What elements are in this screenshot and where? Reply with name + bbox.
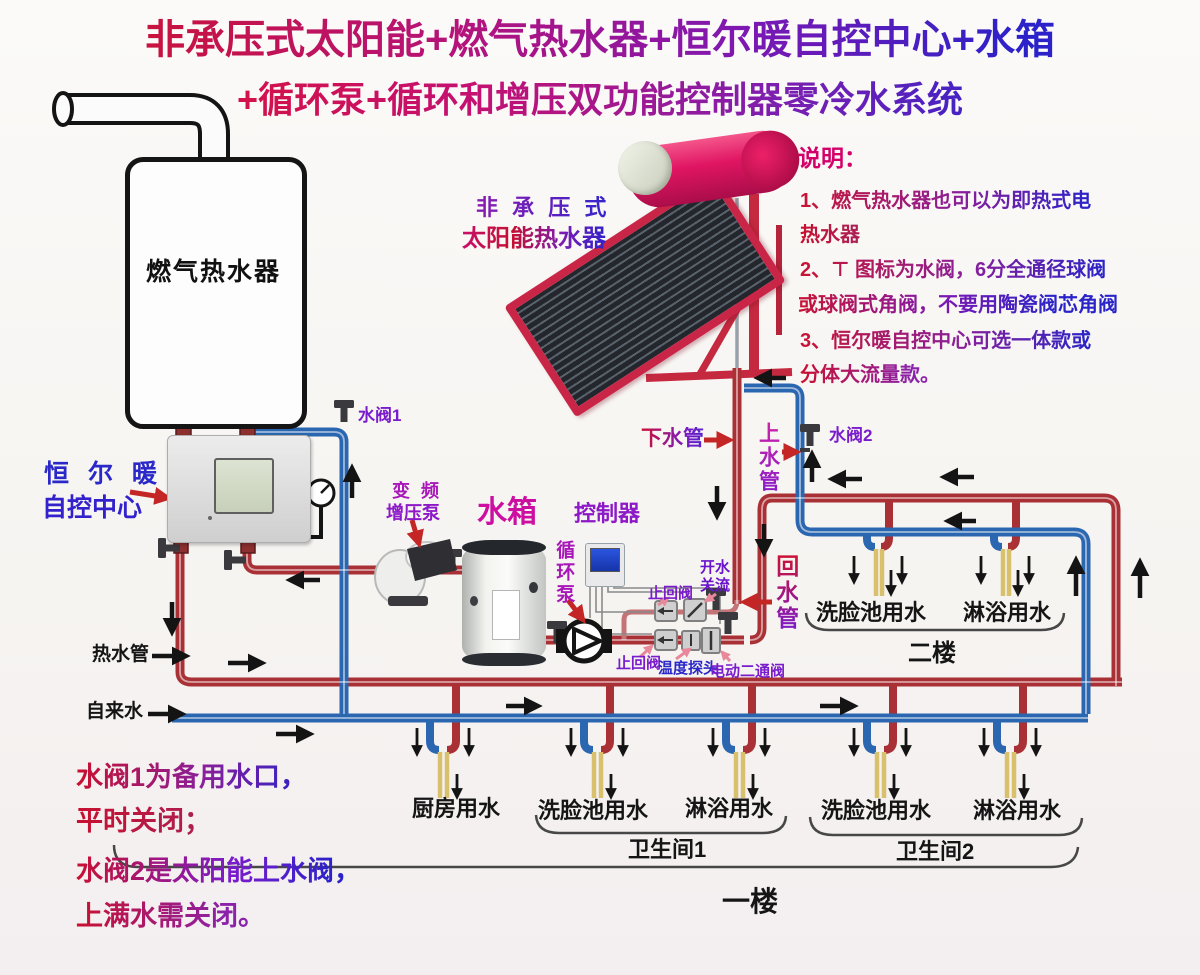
- valve2-label: 水阀2: [829, 426, 872, 445]
- tank-port-left: [470, 596, 478, 606]
- floor1-bath2-tap1-label: 洗脸池用水: [821, 799, 931, 824]
- gas-heater-label: 燃气热水器: [146, 258, 281, 286]
- control-center-unit: [167, 435, 311, 543]
- tank-port-right: [529, 582, 538, 593]
- tank-bottom-cap: [462, 653, 546, 666]
- wall-controller-screen: [590, 548, 620, 572]
- floor2-tap1-label: 洗脸池用水: [816, 601, 926, 626]
- page-title-line2: +循环泵+循环和增压双功能控制器零冷水系统: [0, 80, 1200, 120]
- check-valve-top-label: 止回阀: [648, 586, 693, 603]
- cold-pipe-label: 自来水: [86, 701, 143, 722]
- notes-heading: 说明：: [798, 146, 867, 172]
- up-pipe-label: 上水管: [756, 422, 780, 494]
- footnote-line2: 平时关闭；: [76, 806, 211, 836]
- floor1-bath2-tap2-label: 淋浴用水: [973, 799, 1061, 824]
- control-center-label-line2: 自控中心: [42, 494, 142, 522]
- footnote-line1: 水阀1为备用水口，: [76, 762, 307, 792]
- temp-probe-label: 温度探头: [658, 661, 718, 678]
- floor1-bath1-tap2-label: 淋浴用水: [685, 797, 773, 822]
- floor1-bath1-label: 卫生间1: [628, 838, 706, 863]
- floor1-label: 一楼: [722, 886, 778, 917]
- tank-label: 水箱: [477, 496, 537, 530]
- booster-pump-unit: [375, 539, 457, 606]
- valve1-label: 水阀1: [358, 406, 401, 425]
- control-center-screen: [214, 458, 274, 514]
- note-1-line2: 热水器: [800, 224, 860, 246]
- note-3-line2: 分体大流量款。: [800, 364, 940, 386]
- wall-controller-unit: [585, 543, 625, 587]
- return-pipe-label: 回水管: [772, 554, 798, 632]
- solar-heater-label-line1: 非 承 压 式: [476, 196, 610, 221]
- control-center-label-line1: 恒 尔 暖: [44, 460, 163, 488]
- footnote-line4: 上满水需关闭。: [76, 901, 265, 931]
- floor1-bath2-label: 卫生间2: [896, 840, 974, 865]
- valve-component-row: [655, 599, 720, 653]
- booster-pump-label-line1: 变 频: [392, 481, 442, 501]
- hot-pipe-label: 热水管: [92, 644, 149, 665]
- note-2-line1: 2、⊤ 图标为水阀，6分全通径球阀: [800, 259, 1106, 281]
- circulation-pump-label: 循环泵: [553, 540, 574, 606]
- water-tank-unit: [462, 540, 546, 666]
- floor2-label: 二楼: [908, 641, 956, 668]
- floor2-tap2-label: 淋浴用水: [963, 601, 1051, 626]
- solar-heater-label-line2: 太阳能热水器: [462, 226, 606, 253]
- controller-label: 控制器: [574, 502, 640, 527]
- flow-switch-label-line1: 开水: [700, 560, 730, 577]
- footnote-line3: 水阀2是太阳能上水阀，: [76, 856, 361, 886]
- tank-sticker: [492, 590, 520, 640]
- booster-pump-label-line2: 增压泵: [386, 503, 440, 523]
- flow-switch-label-line2: 关流: [700, 578, 730, 595]
- note-3-line1: 3、恒尔暖自控中心可选一体款或: [800, 330, 1091, 352]
- motor-valve-label: 电动二通阀: [710, 664, 785, 681]
- note-1-line1: 1、燃气热水器也可以为即热式电: [800, 190, 1091, 212]
- page-title-line1: 非承压式太阳能+燃气热水器+恒尔暖自控中心+水箱: [0, 18, 1200, 63]
- down-pipe-label: 下水管: [641, 427, 704, 451]
- tank-top-cap: [462, 540, 546, 555]
- note-2-line2: 或球阀式角阀，不要用陶瓷阀芯角阀: [798, 294, 1118, 316]
- floor1-kitchen-label: 厨房用水: [412, 797, 500, 822]
- check-valve-bottom-label: 止回阀: [616, 656, 661, 673]
- control-center-led: [208, 516, 212, 520]
- diagram-stage: 非承压式太阳能+燃气热水器+恒尔暖自控中心+水箱 +循环泵+循环和增压双功能控制…: [0, 0, 1200, 975]
- floor1-bath1-tap1-label: 洗脸池用水: [538, 799, 648, 824]
- gas-water-heater-unit: [125, 157, 307, 429]
